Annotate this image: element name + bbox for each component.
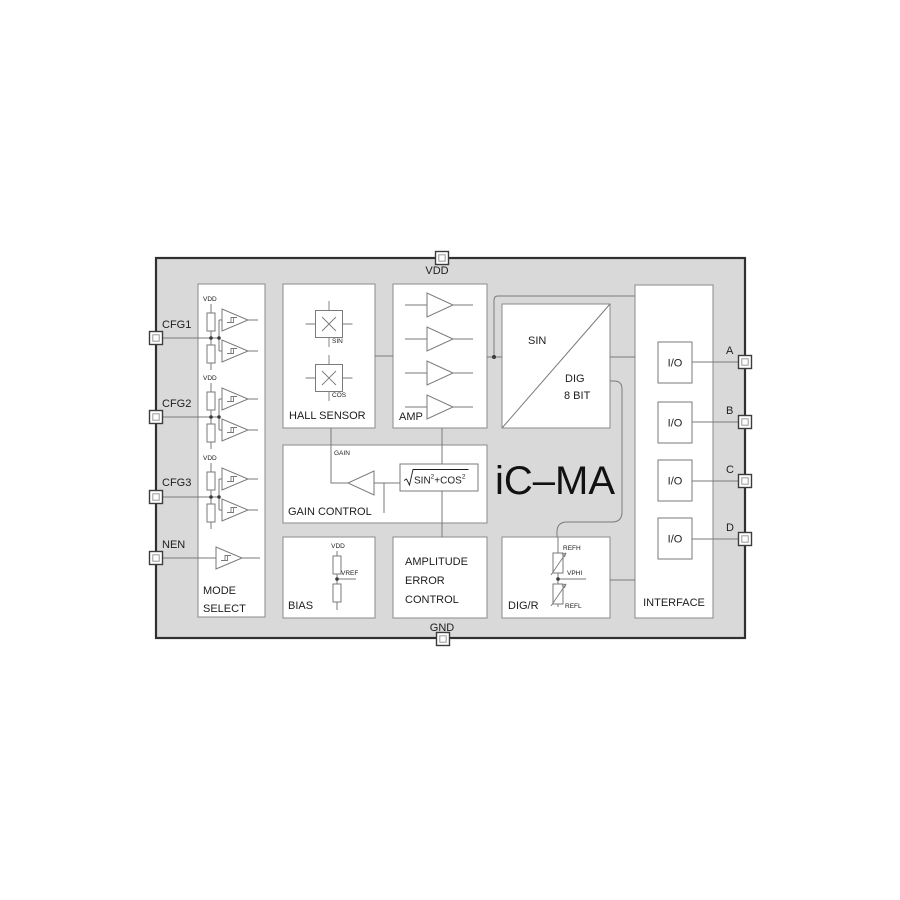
mode-select-block — [198, 284, 265, 617]
pulldown-resistor — [207, 504, 215, 522]
adc-bits-label: 8 BIT — [564, 390, 591, 402]
amp-label: AMP — [399, 411, 423, 423]
vdd-label: VDD — [203, 296, 217, 303]
formula-sup2: 2 — [462, 474, 466, 481]
io-label: I/O — [668, 534, 683, 546]
datasheet-block-diagram: VDD VDD VDD MODE SELECT SI — [0, 0, 900, 900]
pin-pad-d — [739, 533, 752, 546]
hall-sensor-label: HALL SENSOR — [289, 410, 366, 422]
bias-vdd-label: VDD — [331, 543, 345, 550]
aec-label-3: CONTROL — [405, 594, 459, 606]
bias-resistor — [333, 556, 341, 574]
hall-sin-label: SIN — [332, 338, 343, 345]
pin-pad-cfg2 — [150, 411, 163, 424]
pullup-resistor — [207, 472, 215, 490]
pin-label-b: B — [726, 405, 733, 417]
bias-resistor — [333, 584, 341, 602]
aec-label-2: ERROR — [405, 575, 445, 587]
pulldown-resistor — [207, 424, 215, 442]
pin-pad-c — [739, 475, 752, 488]
gain-control-label: GAIN CONTROL — [288, 506, 372, 518]
pin-pad-cfg1 — [150, 332, 163, 345]
pulldown-resistor — [207, 345, 215, 363]
pin-label-nen: NEN — [162, 539, 185, 551]
pin-pad-vdd — [436, 252, 449, 265]
interface-label: INTERFACE — [643, 597, 705, 609]
pullup-resistor — [207, 392, 215, 410]
mode-select-label-1: MODE — [203, 585, 236, 597]
gain-wire-label: GAIN — [334, 450, 350, 457]
pullup-resistor — [207, 313, 215, 331]
adc-sin-label: SIN — [528, 335, 546, 347]
vphi-label: VPHI — [567, 570, 582, 577]
hall-cos-label: COS — [332, 392, 347, 399]
pin-label-cfg2: CFG2 — [162, 398, 191, 410]
bias-label: BIAS — [288, 600, 313, 612]
io-label: I/O — [668, 358, 683, 370]
vdd-label: VDD — [203, 455, 217, 462]
formula-text: SIN2+COS2 — [414, 474, 466, 487]
diagram-canvas: VDD VDD VDD MODE SELECT SI — [0, 0, 900, 900]
pin-pad-cfg3 — [150, 491, 163, 504]
formula-cos: +COS — [434, 476, 462, 487]
pin-label-vdd: VDD — [425, 265, 448, 277]
pin-label-d: D — [726, 522, 734, 534]
refh-label: REFH — [563, 545, 581, 552]
pin-label-a: A — [726, 345, 734, 357]
pin-pad-b — [739, 416, 752, 429]
dig-r-label: DIG/R — [508, 600, 539, 612]
aec-label-1: AMPLITUDE — [405, 556, 468, 568]
mode-select-label-2: SELECT — [203, 603, 246, 615]
vref-label: VREF — [341, 570, 358, 577]
pin-label-cfg3: CFG3 — [162, 477, 191, 489]
refl-label: REFL — [565, 603, 582, 610]
interface-block — [635, 285, 713, 618]
io-label: I/O — [668, 476, 683, 488]
pin-label-c: C — [726, 464, 734, 476]
io-label: I/O — [668, 418, 683, 430]
pin-label-cfg1: CFG1 — [162, 319, 191, 331]
formula-sin: SIN — [414, 476, 431, 487]
pin-pad-nen — [150, 552, 163, 565]
adc-dig-label: DIG — [565, 373, 585, 385]
pin-pad-a — [739, 356, 752, 369]
vdd-label: VDD — [203, 375, 217, 382]
pin-pad-gnd — [437, 633, 450, 646]
chip-title: iC–MA — [495, 459, 615, 503]
